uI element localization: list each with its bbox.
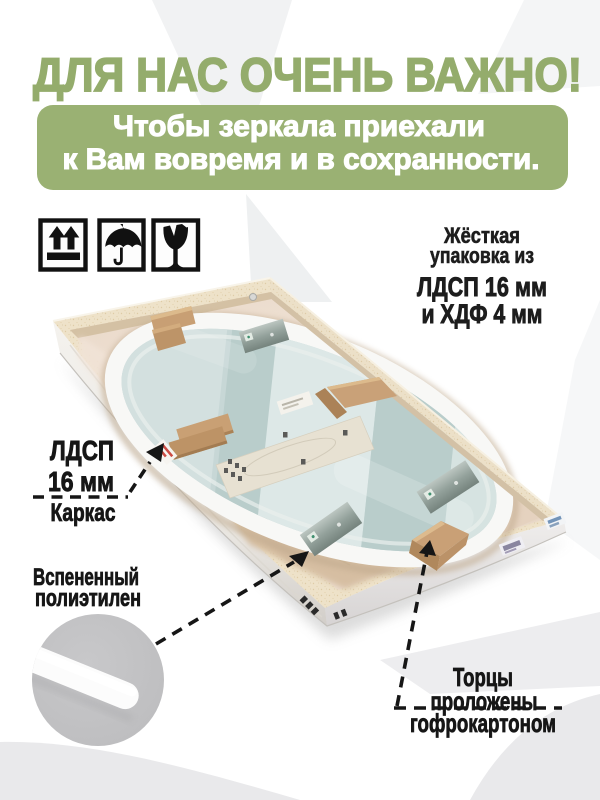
svg-text:ДЛЯ НАС ОЧЕНЬ ВАЖНО!: ДЛЯ НАС ОЧЕНЬ ВАЖНО! xyxy=(33,48,582,101)
svg-text:к Вам вовремя и в сохранности.: к Вам вовремя и в сохранности. xyxy=(63,143,540,176)
svg-text:ЛДСП: ЛДСП xyxy=(50,435,114,466)
svg-text:и ХДФ 4 мм: и ХДФ 4 мм xyxy=(422,299,543,329)
svg-text:Каркас: Каркас xyxy=(51,499,116,527)
svg-text:ЛДСП 16 мм: ЛДСП 16 мм xyxy=(417,272,547,302)
svg-text:полиэтилен: полиэтилен xyxy=(35,585,141,612)
svg-text:упаковка из: упаковка из xyxy=(430,243,534,268)
svg-text:гофрокартоном: гофрокартоном xyxy=(410,708,556,738)
svg-text:16 мм: 16 мм xyxy=(48,466,114,497)
svg-text:Чтобы зеркала приехали: Чтобы зеркала приехали xyxy=(113,110,485,143)
